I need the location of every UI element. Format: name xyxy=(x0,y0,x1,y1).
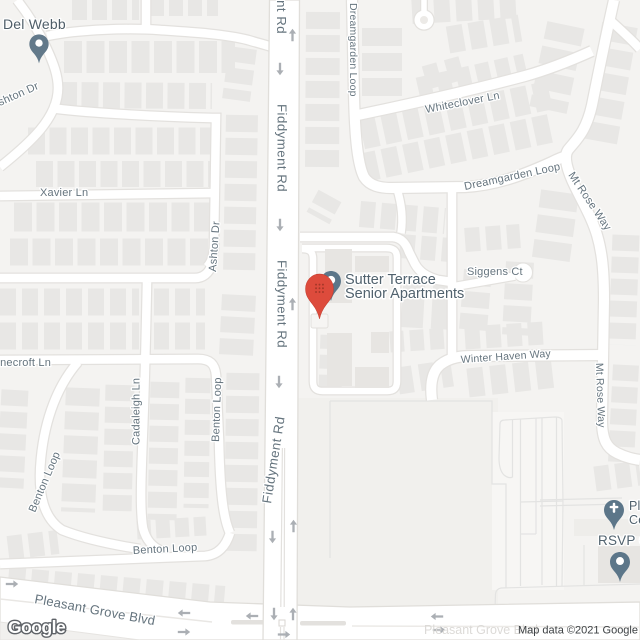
svg-text:Fiddyment Rd: Fiddyment Rd xyxy=(275,260,290,348)
svg-text:Plea: Plea xyxy=(629,499,640,513)
svg-text:Google: Google xyxy=(8,617,66,637)
svg-text:Xavier Ln: Xavier Ln xyxy=(40,187,88,199)
svg-text:Mt Rose Way: Mt Rose Way xyxy=(593,363,607,429)
svg-text:RSVP Ga: RSVP Ga xyxy=(598,533,640,548)
svg-text:Fiddyment Rd: Fiddyment Rd xyxy=(275,104,290,192)
svg-text:Senior Apartments: Senior Apartments xyxy=(345,286,464,302)
svg-text:Fiddyment Rd: Fiddyment Rd xyxy=(274,0,289,34)
svg-text:Stonecroft Ln: Stonecroft Ln xyxy=(0,357,51,369)
svg-text:Benton Loop: Benton Loop xyxy=(210,377,224,442)
svg-text:Cadaleigh Ln: Cadaleigh Ln xyxy=(131,378,143,445)
svg-text:Com: Com xyxy=(629,513,640,527)
svg-text:Del Webb: Del Webb xyxy=(3,16,66,32)
svg-text:Siggens Ct: Siggens Ct xyxy=(467,266,523,278)
svg-text:Dreamgarden Loop: Dreamgarden Loop xyxy=(347,3,359,97)
svg-text:Map data ©2021 Google: Map data ©2021 Google xyxy=(518,625,638,637)
